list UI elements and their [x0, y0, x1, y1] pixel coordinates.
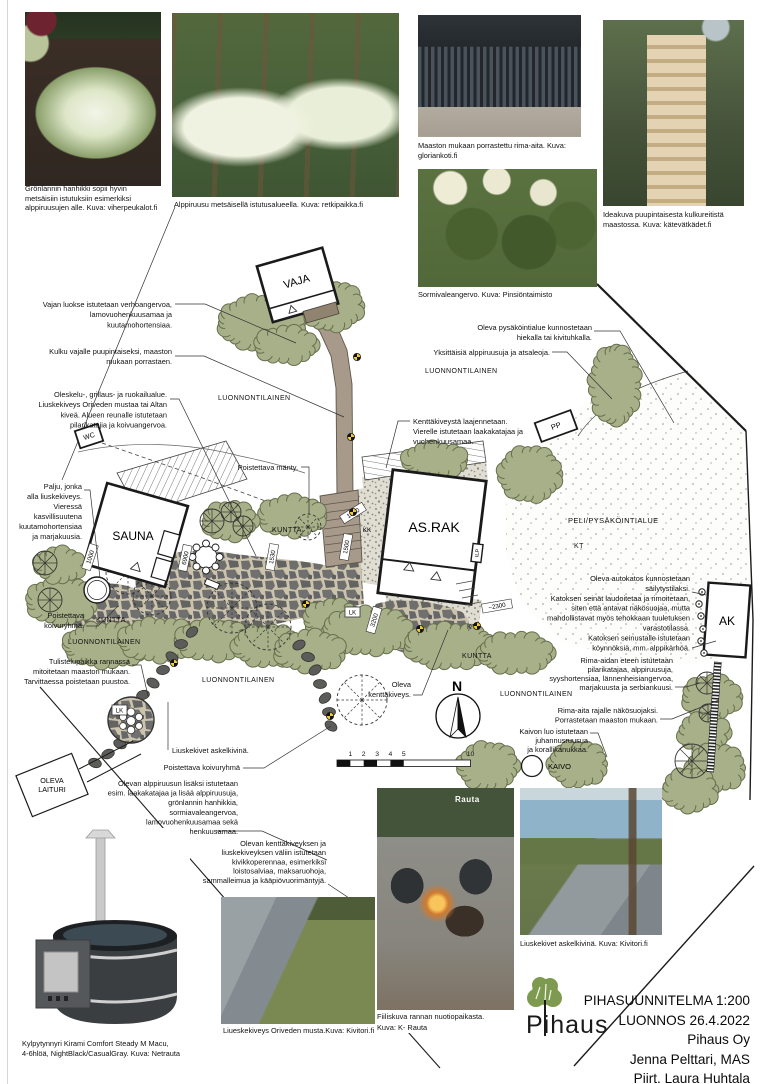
annotation-text: Vierelle istutetaan laakakatajaa ja [413, 427, 524, 436]
north-label: N [452, 678, 462, 694]
annotation-text: Porrastetaan maaston mukaan. [555, 716, 658, 725]
caption-line: Ideakuva puupintaisesta kulkureitistä [603, 210, 724, 220]
scale-tick-10: 10 [467, 751, 475, 758]
scale-bar: 1 2 3 4 5 10 [337, 751, 474, 767]
caption-line: metsäisiin istutuksiin esimerkiksi [25, 194, 157, 204]
stepping-stone [313, 679, 327, 689]
annotation-text: Oleva [392, 680, 412, 689]
kaivo-label: KAIVO [548, 762, 571, 771]
annotation-text: Tulistelupaikka rannassa [49, 657, 131, 666]
lamp-icon [326, 712, 333, 719]
hot-tub-illustration [20, 828, 190, 1036]
garden-plan-sheet: LK VAJA SAUNA [0, 0, 768, 1084]
annotation-text: mitoitetaan maaston mukaan. [33, 667, 130, 676]
annotation-text: Poistettava koivuryhmä [164, 763, 241, 772]
caption-nuotiopaikka: Fiiliskuva rannan nuotiopaikasta. Kuva: … [377, 1012, 486, 1033]
title-plan-name: PIHASUUNNITELMA 1:200 [584, 991, 750, 1011]
caption-line: gloriankoti.fi [418, 151, 566, 161]
area-label-kt: KT [574, 543, 584, 550]
scale-tick-5: 5 [402, 751, 406, 758]
kk-label: KK [363, 527, 372, 534]
area-label-luonnontilainen: LUONNONTILAINEN [68, 639, 141, 646]
scale-tick-4: 4 [389, 751, 393, 758]
annotation-text: Yksittäisiä alppiruusuja ja atsaleoja. [433, 348, 550, 357]
photo-sormivaleangervo [418, 169, 597, 287]
tree-icon [675, 744, 709, 778]
tree-icon [38, 588, 62, 612]
caption-line: Alppiruusu metsäisellä istutusalueella. … [174, 200, 363, 210]
area-label-luonnontilainen: LUONNONTILAINEN [425, 368, 498, 375]
annotation-text: kenttäkiveys. [368, 690, 411, 699]
annotation-text: sammalleimua ja kääpiövuorimäntyjä. [203, 876, 326, 885]
shrub-cloud [660, 768, 718, 814]
annotation-text: marjakuusta ja serbiankuusi. [579, 683, 673, 692]
lk-label: LK [349, 611, 356, 617]
annotation-text: Vajan luokse istutetaan verhoangervoa, [43, 300, 172, 309]
tree-to-remove-icon [337, 675, 387, 725]
lamp-icon [347, 433, 354, 440]
annotation-text: Olevan kenttäkiveyksen ja [240, 839, 327, 848]
caption-line: 4-6hlöä, NightBlack/CasualGray. Kuva: Ne… [22, 1049, 180, 1059]
round-table-chairs [189, 540, 223, 574]
annotation-text: Rima-aita rajalle näkösuojaksi. [558, 706, 658, 715]
caption-liuskekiveys-musta: Liueskekiveys Oriveden musta.Kuva: Kivit… [223, 1026, 374, 1036]
annotation-text: Rima-aidan eteen istutetaan [581, 656, 673, 665]
lamp-icon [416, 625, 423, 632]
stepping-stone [156, 665, 170, 676]
annotation-text: köynnöksiä, mm. alppikärhöä. [592, 643, 690, 652]
caption-line: Liueskekiveys Oriveden musta.Kuva: Kivit… [223, 1026, 374, 1036]
annotation-text: Tarvittaessa poistetaan puustoa. [24, 677, 130, 686]
caption-line: Liuskekivet askelkivinä. Kuva: Kivitori.… [520, 939, 648, 949]
caption-line: Kylpytynnyri Kirami Comfort Steady M Mac… [22, 1039, 180, 1049]
caption-line: Sormivaleangervo. Kuva: Pinsiöntaimisto [418, 290, 552, 300]
annotation-text: säilytystilaksi. [645, 584, 690, 593]
tree-icon [233, 516, 253, 536]
annotation-text: Liuskekiveys Oriveden mustaa tai Altan [38, 400, 167, 409]
lamp-icon [353, 353, 360, 360]
caption-sormivaleangervo: Sormivaleangervo. Kuva: Pinsiöntaimisto [418, 290, 552, 300]
annotation-text: Katoksen seinustalle istutetaan [588, 633, 690, 642]
scale-tick-2: 2 [362, 751, 366, 758]
annotation-text: kuutamohortensiaa [19, 522, 83, 531]
photo-liuskekiveys-musta [221, 897, 375, 1024]
title-company: Pihaus Oy [584, 1030, 750, 1050]
annotation-text: grönlannin hanhikkia, [168, 798, 238, 807]
annotation-leader-line [243, 726, 331, 768]
caption-line: alppiruusujen alle. Kuva: viherpeukalot.… [25, 203, 157, 213]
shrub-cloud [254, 325, 320, 366]
annotation-text: siten että antavat näkösuojaa, mutta [571, 604, 691, 613]
ilp-box: ILP [471, 543, 483, 562]
title-designer: Jenna Pelttari, MAS [584, 1050, 750, 1070]
annotation-askel: Liuskekivet askelkivinä. [168, 702, 249, 755]
annotation-text: Vieressä [53, 502, 83, 511]
annotation-text: alla liuskekiveys. [27, 492, 82, 501]
caption-line: Kuva: K- Rauta [377, 1023, 486, 1034]
annotation-text: lamovuohenkuusamaa ja [90, 310, 173, 319]
tree-icon [200, 509, 224, 533]
area-label-luonnontilainen: LUONNONTILAINEN [202, 677, 275, 684]
annotation-text: ja marjakuusia. [31, 532, 82, 541]
photo-nuotiopaikka [377, 788, 514, 1010]
annotation-text: pilarikatajaa, alppiruusuja, [588, 665, 673, 674]
caption-hanhikki: Grönlannin hanhikki sopii hyvin metsäisi… [25, 184, 157, 213]
stepping-stone [174, 639, 187, 649]
scale-tick-1: 1 [349, 751, 353, 758]
caption-alppiruusu: Alppiruusu metsäisellä istutusalueella. … [174, 200, 363, 210]
rauta-watermark: Rauta [455, 795, 480, 804]
firepit-lk-label: LK [116, 709, 123, 715]
photo-puuportaat [603, 20, 744, 206]
annotation-text: liuskekiveyksen väliin istutetaan [222, 848, 326, 857]
annotation-text: kivikkoperennaa, esimerkiksi [232, 857, 326, 866]
fire-pit: LK [108, 697, 154, 743]
title-drafter: Piirt. Laura Huhtala [584, 1069, 750, 1084]
annotation-text: pilarikatajia ja koivuangervoa. [70, 421, 167, 430]
annotation-leader-line [175, 356, 344, 417]
lk-box-path: LK [345, 607, 360, 617]
annotation-text: koivuryhmä. [44, 621, 84, 630]
annotation-text: varastotilassa. [643, 624, 690, 633]
building-ak: AK [704, 583, 751, 658]
ilp-label: ILP [475, 548, 482, 557]
laituri-label-1: OLEVA [40, 776, 64, 785]
annotation-text: Palju, jonka [44, 482, 83, 491]
asrak-label: AS.RAK [408, 519, 460, 535]
caption-line: Grönlannin hanhikki sopii hyvin [25, 184, 157, 194]
caption-line: Fiiliskuva rannan nuotiopaikasta. [377, 1012, 486, 1023]
scale-tick-3: 3 [375, 751, 379, 758]
caption-kylpytynnyri: Kylpytynnyri Kirami Comfort Steady M Mac… [22, 1039, 180, 1058]
photo-hanhikki [25, 12, 161, 186]
annotation-text: vuohenkuusamaa. [413, 437, 473, 446]
annotation-text: syyshortensiaa, lännenheisiangervoa, [549, 674, 673, 683]
peli-pysakointialue-label: PELI/PYSÄKÖINTIALUE [568, 516, 659, 525]
building-asrak: AS.RAK ILP [378, 470, 486, 605]
lamp-icon [170, 659, 177, 666]
ak-label: AK [719, 614, 735, 628]
stepping-stone [145, 676, 161, 690]
annotation-text: juhannusruusua [534, 736, 588, 745]
annotation-text: Poistettava [47, 611, 84, 620]
lamp-icon [473, 622, 480, 629]
annotation-text: Kaivon luo istutetaan [519, 727, 588, 736]
annotation-text: Oleva pysäköintialue kunnostetaan [477, 323, 592, 332]
palju-hot-tub [84, 577, 110, 603]
annotation-text: Kulku vajalle puupintaiseksi, maaston [49, 347, 172, 356]
north-arrow: N [436, 678, 480, 738]
photo-askelkivet [520, 788, 662, 935]
title-draft-date: LUONNOS 26.4.2022 [584, 1011, 750, 1031]
annotation-text: loistosalviaa, maksaruohoja, [233, 867, 326, 876]
shrub-cloud [274, 628, 347, 674]
annotation-text: mahdollistavat myös tehokkaan tuuletukse… [547, 614, 690, 623]
area-label-luonnontilainen: LUONNONTILAINEN [218, 395, 291, 402]
area-label-kuntta: KUNTTA [462, 653, 492, 660]
area-label-kuntta: KUNTTA [96, 617, 126, 624]
caption-askelkivet: Liuskekivet askelkivinä. Kuva: Kivitori.… [520, 939, 648, 949]
annotation-text: kasvillisuutena [34, 512, 83, 521]
annotation-text: ja korallikanukkaa. [526, 745, 588, 754]
caption-rima-aita: Maaston mukaan porrastettu rima-aita. Ku… [418, 141, 566, 160]
title-block: PIHASUUNNITELMA 1:200 LUONNOS 26.4.2022 … [584, 991, 750, 1084]
annotation-text: hiekalla tai kivituhkalla. [517, 333, 592, 342]
photo-rima-aita [418, 15, 581, 137]
area-label-kuntta: KUNTTA [272, 527, 302, 534]
annotation-text: Liuskekivet askelkivinä. [172, 746, 249, 755]
annotation-text: sormiavaleangervoa, [169, 808, 238, 817]
annotation-text: Kenttäkiveystä laajennetaan. [413, 417, 508, 426]
sauna-label: SAUNA [112, 529, 153, 543]
photo-kylpytynnyri [20, 828, 190, 1036]
annotation-text: lamovuohenkuusamaa sekä [146, 817, 239, 826]
lamp-icon [302, 600, 309, 607]
annotation-text: Poistettava mänty. [238, 463, 298, 472]
lamp-icon [349, 508, 356, 515]
area-label-luonnontilainen: LUONNONTILAINEN [500, 691, 573, 698]
laituri-label-2: LAITURI [38, 785, 66, 794]
annotation-text: Oleva autokatos kunnostetaan [590, 574, 690, 583]
caption-puuportaat: Ideakuva puupintaisesta kulkureitistä ma… [603, 210, 724, 229]
caption-line: maastossa. Kuva: kätevätkädet.fi [603, 220, 724, 230]
annotation-text: Oleskelu-, grillaus- ja ruokailualue. [54, 390, 167, 399]
annotation-text: esim. laakakatajaa ja lisää alppiruusuja… [108, 789, 238, 798]
stepping-stone [317, 690, 333, 705]
annotation-text: Katoksen seinät laudoitetaa ja rimoiteta… [551, 594, 690, 603]
annotation-text: kuutamohortensiaa. [107, 320, 172, 329]
photo-alppiruusu [172, 13, 399, 197]
tree-icon [33, 551, 57, 575]
annotation-text: mukaan porrastaen. [106, 357, 172, 366]
annotation-text: kiveä. Alueen reunalle istutetaan [61, 410, 167, 419]
shrub-cloud [32, 545, 86, 584]
caption-line: Maaston mukaan porrastettu rima-aita. Ku… [418, 141, 566, 151]
annotation-text: Olevan alppiruusun lisäksi istutetaan [118, 779, 238, 788]
